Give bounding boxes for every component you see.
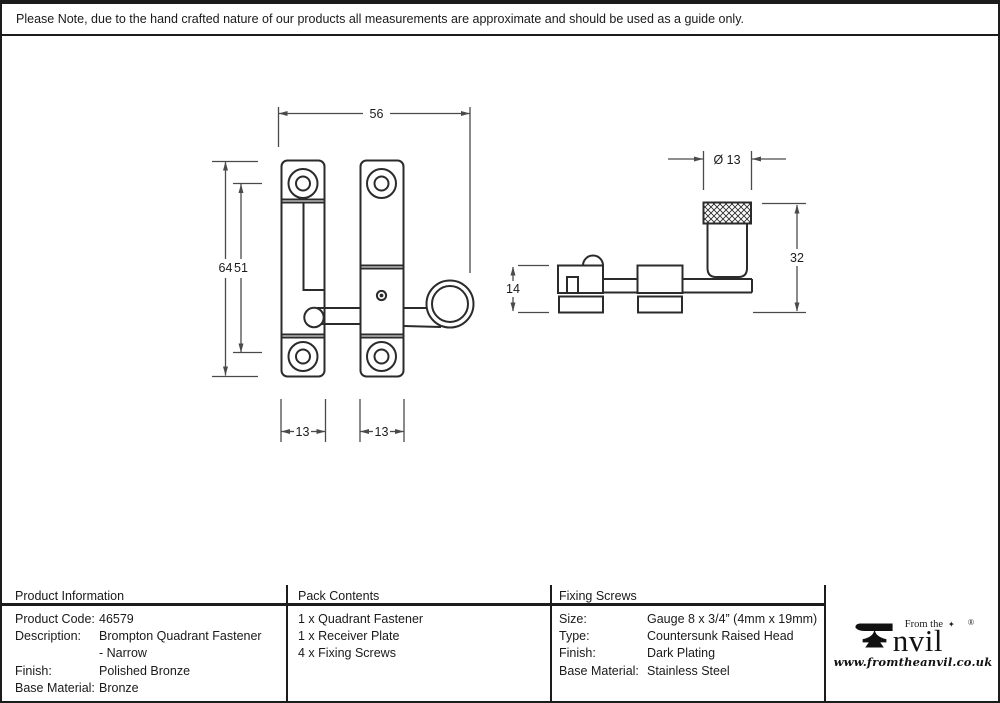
- dimension-diameter-13: Ø 13: [668, 151, 786, 190]
- registered-mark: ®: [968, 617, 974, 627]
- dimension-13-left: 13: [281, 399, 326, 442]
- field-label: Size:: [559, 611, 647, 628]
- side-view: Ø 13 32 14: [506, 151, 806, 313]
- svg-text:Ø 13: Ø 13: [713, 153, 740, 167]
- field-label: Base Material:: [559, 663, 647, 680]
- field-value: 46579: [99, 611, 262, 628]
- screw-hole: [367, 169, 396, 198]
- header-fixing-screws: Fixing Screws: [559, 589, 637, 603]
- logo-url: www.fromtheanvil.co.uk: [834, 655, 993, 669]
- field-value: Gauge 8 x 3/4” (4mm x 19mm): [647, 611, 817, 628]
- screw-hole: [289, 169, 318, 198]
- screw-hole: [289, 342, 318, 371]
- field-value: Countersunk Raised Head: [647, 628, 817, 645]
- pack-item: 1 x Receiver Plate: [298, 628, 423, 645]
- field-value: Polished Bronze: [99, 663, 262, 680]
- pack-contents-cell: 1 x Quadrant Fastener 1 x Receiver Plate…: [298, 611, 423, 663]
- svg-text:13: 13: [296, 425, 310, 439]
- dimension-14: 14: [506, 266, 549, 313]
- ring-knob: [427, 281, 474, 328]
- svg-text:32: 32: [790, 251, 804, 265]
- field-label: Type:: [559, 628, 647, 645]
- dimension-32: 32: [753, 204, 806, 313]
- knurled-knob: [704, 203, 752, 224]
- column-divider: [550, 585, 552, 701]
- screw-hole: [367, 342, 396, 371]
- field-label: Description:: [15, 628, 99, 645]
- brand-logo: From the ✦ ® nvil www.fromtheanvil.co.uk: [826, 585, 1000, 701]
- svg-text:64: 64: [219, 261, 233, 275]
- anvil-icon: [852, 620, 896, 651]
- field-value: Bronze: [99, 680, 262, 697]
- field-label: Product Code:: [15, 611, 99, 628]
- field-value: Dark Plating: [647, 645, 817, 662]
- front-view: 56 64 51: [212, 107, 474, 442]
- pack-item: 4 x Fixing Screws: [298, 645, 423, 662]
- field-label: Base Material:: [15, 680, 99, 697]
- product-spec-sheet: 56 64 51: [0, 0, 1000, 703]
- logo-brand-text: nvil: [893, 630, 974, 651]
- header-underline: [2, 603, 824, 606]
- pivot-pin: [304, 308, 323, 327]
- dimension-51: 51: [233, 184, 262, 353]
- svg-text:56: 56: [370, 107, 384, 121]
- svg-text:14: 14: [506, 282, 520, 296]
- technical-drawing: 56 64 51: [2, 2, 998, 551]
- svg-text:13: 13: [375, 425, 389, 439]
- field-value: Brompton Quadrant Fastener: [99, 628, 262, 645]
- field-label: Finish:: [15, 663, 99, 680]
- dimension-13-right: 13: [360, 399, 404, 442]
- field-value: Stainless Steel: [647, 663, 817, 680]
- measurement-note: Please Note, due to the hand crafted nat…: [2, 2, 998, 36]
- header-product-information: Product Information: [15, 589, 124, 603]
- field-value: - Narrow: [99, 645, 262, 662]
- product-information-cell: Product Code: 46579 Description: Brompto…: [15, 611, 262, 697]
- note-text: Please Note, due to the hand crafted nat…: [16, 12, 744, 26]
- pack-item: 1 x Quadrant Fastener: [298, 611, 423, 628]
- field-label: [15, 645, 99, 662]
- column-divider: [286, 585, 288, 701]
- star-icon: ✦: [948, 621, 955, 629]
- svg-text:51: 51: [234, 261, 248, 275]
- fixing-screws-cell: Size: Gauge 8 x 3/4” (4mm x 19mm) Type: …: [559, 611, 817, 680]
- header-pack-contents: Pack Contents: [298, 589, 379, 603]
- field-label: Finish:: [559, 645, 647, 662]
